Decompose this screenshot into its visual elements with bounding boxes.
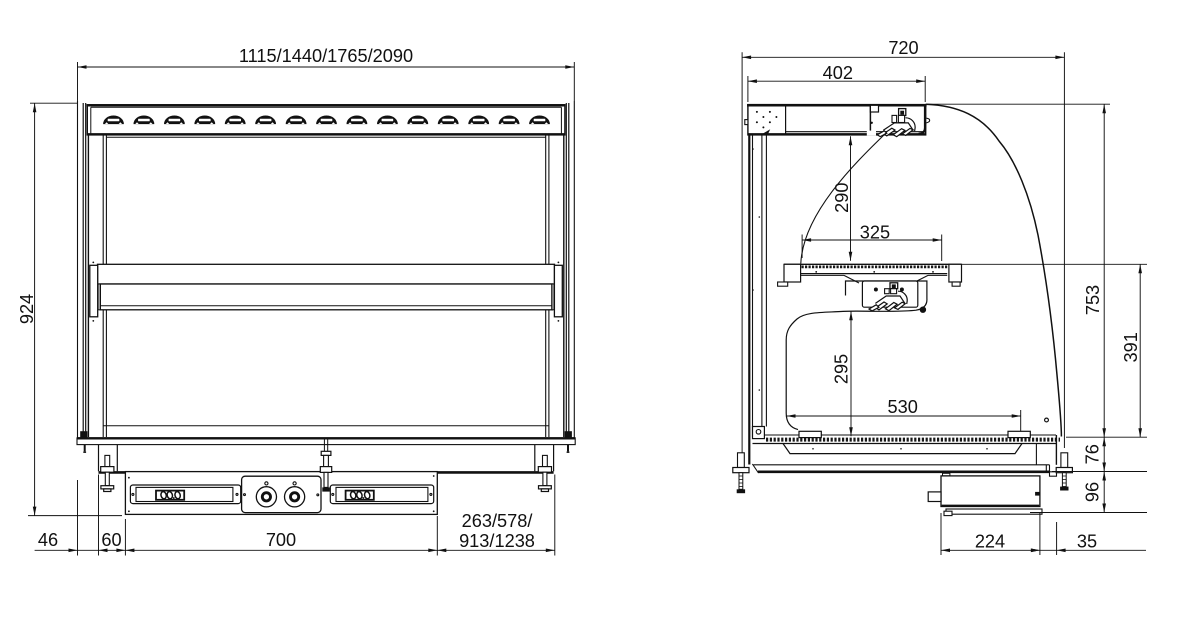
svg-text:700: 700 <box>266 530 296 550</box>
svg-text:325: 325 <box>860 222 890 242</box>
svg-text:753: 753 <box>1083 285 1103 315</box>
svg-text:295: 295 <box>832 354 852 384</box>
svg-text:76: 76 <box>1082 444 1102 464</box>
svg-text:913/1238: 913/1238 <box>459 531 535 551</box>
svg-text:530: 530 <box>888 397 918 417</box>
svg-text:96: 96 <box>1082 482 1102 502</box>
svg-text:720: 720 <box>888 38 918 58</box>
svg-text:924: 924 <box>17 294 37 324</box>
svg-text:60: 60 <box>101 530 121 550</box>
svg-text:35: 35 <box>1077 532 1097 552</box>
svg-text:290: 290 <box>832 183 852 213</box>
svg-text:1115/1440/1765/2090: 1115/1440/1765/2090 <box>239 46 413 66</box>
svg-text:391: 391 <box>1121 332 1141 362</box>
svg-text:263/578/: 263/578/ <box>462 511 534 531</box>
svg-text:224: 224 <box>975 532 1005 552</box>
svg-text:402: 402 <box>823 63 853 83</box>
svg-text:46: 46 <box>38 530 58 550</box>
